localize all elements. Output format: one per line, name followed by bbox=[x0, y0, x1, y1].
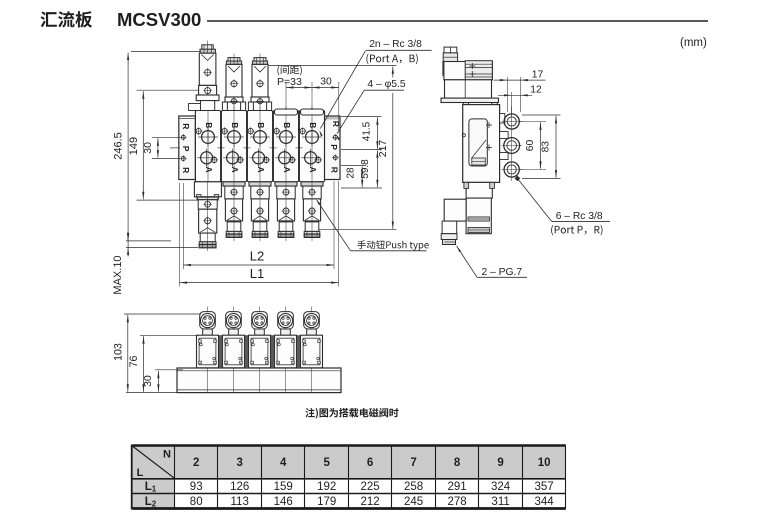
svg-text:R: R bbox=[331, 121, 341, 127]
svg-text:2n – Rc 3/8: 2n – Rc 3/8 bbox=[369, 39, 422, 50]
svg-text:179: 179 bbox=[317, 496, 336, 508]
svg-text:5: 5 bbox=[323, 457, 330, 469]
svg-text:126: 126 bbox=[230, 481, 249, 493]
svg-text:225: 225 bbox=[361, 481, 380, 493]
svg-text:4 – φ5.5: 4 – φ5.5 bbox=[367, 79, 405, 90]
svg-text:149: 149 bbox=[128, 137, 140, 155]
svg-text:6: 6 bbox=[367, 457, 373, 469]
svg-text:113: 113 bbox=[231, 496, 249, 508]
svg-text:30: 30 bbox=[143, 375, 154, 387]
svg-text:L2: L2 bbox=[250, 249, 264, 264]
svg-text:60: 60 bbox=[525, 140, 536, 152]
svg-text:83: 83 bbox=[541, 141, 552, 153]
svg-text:A: A bbox=[308, 167, 317, 173]
svg-text:159: 159 bbox=[274, 481, 293, 493]
svg-text:A: A bbox=[204, 167, 213, 173]
svg-text:245: 245 bbox=[404, 496, 423, 508]
svg-text:59.8: 59.8 bbox=[360, 159, 371, 179]
svg-text:80: 80 bbox=[190, 496, 203, 508]
svg-text:146: 146 bbox=[274, 496, 293, 508]
svg-text:R: R bbox=[181, 123, 191, 129]
svg-text:2 – PG.7: 2 – PG.7 bbox=[482, 267, 523, 278]
svg-text:344: 344 bbox=[535, 496, 555, 508]
svg-text:30: 30 bbox=[142, 142, 154, 154]
svg-text:12: 12 bbox=[530, 85, 542, 96]
svg-text:B: B bbox=[256, 122, 265, 128]
svg-text:9: 9 bbox=[497, 457, 503, 469]
svg-text:MAX.10: MAX.10 bbox=[112, 255, 124, 294]
svg-text:A: A bbox=[282, 167, 291, 173]
svg-text:93: 93 bbox=[190, 481, 203, 493]
svg-text:(mm): (mm) bbox=[680, 37, 707, 49]
svg-text:103: 103 bbox=[112, 343, 124, 361]
svg-text:30: 30 bbox=[320, 77, 332, 88]
svg-text:8: 8 bbox=[454, 457, 461, 469]
svg-text:278: 278 bbox=[448, 496, 467, 508]
svg-text:R: R bbox=[330, 167, 340, 173]
svg-text:MCSV300: MCSV300 bbox=[117, 9, 201, 30]
svg-text:6 – Rc 3/8: 6 – Rc 3/8 bbox=[556, 211, 603, 222]
svg-text:B: B bbox=[230, 122, 239, 128]
svg-text:N: N bbox=[163, 449, 171, 461]
svg-text:P=33: P=33 bbox=[277, 76, 302, 88]
svg-text:B: B bbox=[308, 122, 317, 128]
svg-text:357: 357 bbox=[535, 481, 554, 493]
svg-text:17: 17 bbox=[532, 69, 544, 80]
svg-text:41.5: 41.5 bbox=[361, 121, 372, 141]
svg-text:A: A bbox=[256, 167, 265, 173]
svg-text:L1: L1 bbox=[250, 266, 264, 281]
svg-text:L: L bbox=[137, 467, 144, 479]
svg-text:R: R bbox=[181, 167, 191, 173]
svg-text:258: 258 bbox=[404, 481, 423, 493]
svg-text:B: B bbox=[204, 122, 213, 128]
svg-text:217: 217 bbox=[377, 140, 389, 158]
svg-text:7: 7 bbox=[410, 457, 416, 469]
svg-text:246.5: 246.5 bbox=[113, 132, 125, 160]
svg-text:311: 311 bbox=[491, 496, 509, 508]
svg-text:P: P bbox=[329, 144, 339, 150]
svg-text:291: 291 bbox=[448, 481, 467, 493]
svg-text:28: 28 bbox=[346, 167, 357, 179]
svg-text:A: A bbox=[230, 167, 239, 173]
svg-text:P: P bbox=[181, 146, 191, 152]
svg-text:3: 3 bbox=[236, 457, 242, 469]
svg-text:192: 192 bbox=[317, 481, 336, 493]
svg-text:2: 2 bbox=[193, 457, 199, 469]
svg-text:10: 10 bbox=[538, 457, 551, 469]
svg-text:4: 4 bbox=[280, 457, 287, 469]
svg-text:212: 212 bbox=[361, 496, 380, 508]
svg-text:324: 324 bbox=[491, 481, 511, 493]
svg-text:76: 76 bbox=[128, 356, 140, 368]
svg-text:B: B bbox=[282, 122, 291, 128]
